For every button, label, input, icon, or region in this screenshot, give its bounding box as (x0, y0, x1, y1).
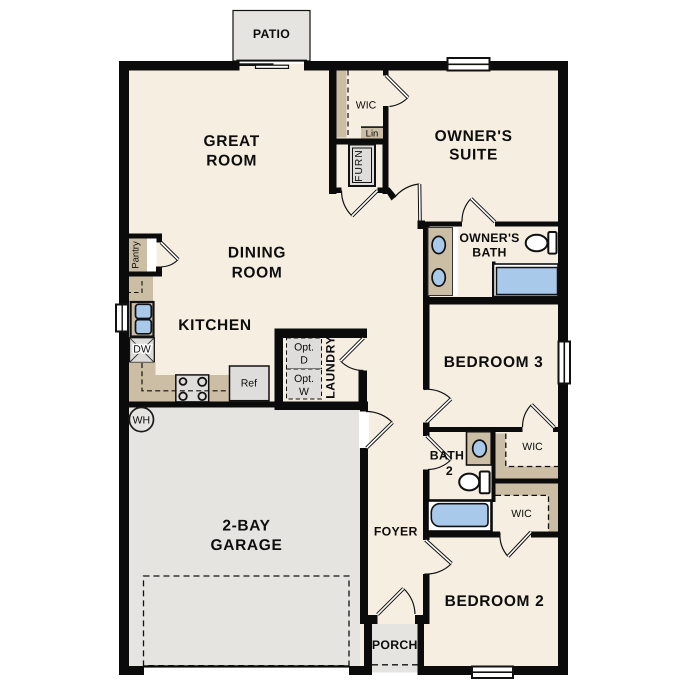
svg-text:BEDROOM 3: BEDROOM 3 (444, 354, 544, 371)
svg-text:DINING: DINING (228, 245, 286, 262)
svg-text:DW: DW (133, 344, 151, 356)
svg-text:WIC: WIC (356, 100, 377, 112)
svg-text:OWNER'S: OWNER'S (459, 231, 519, 245)
svg-text:2-BAY: 2-BAY (222, 518, 270, 535)
svg-text:PORCH: PORCH (372, 638, 418, 652)
svg-text:ROOM: ROOM (232, 265, 283, 282)
svg-text:ROOM: ROOM (206, 152, 257, 169)
svg-text:WIC: WIC (522, 441, 543, 453)
svg-text:FURN: FURN (354, 149, 365, 182)
svg-text:WH: WH (133, 414, 151, 426)
svg-text:GARAGE: GARAGE (211, 537, 283, 554)
svg-text:KITCHEN: KITCHEN (178, 317, 251, 334)
svg-text:BATH: BATH (472, 246, 506, 260)
svg-text:LAUNDRY: LAUNDRY (324, 336, 338, 399)
svg-text:SUITE: SUITE (449, 147, 498, 164)
svg-text:BEDROOM 2: BEDROOM 2 (445, 593, 545, 610)
svg-text:OWNER'S: OWNER'S (435, 128, 513, 145)
svg-text:Ref: Ref (241, 377, 257, 389)
svg-text:WIC: WIC (511, 508, 532, 520)
svg-text:Lin: Lin (366, 129, 379, 140)
svg-text:Opt.: Opt. (294, 373, 314, 385)
svg-text:2: 2 (446, 464, 453, 478)
svg-text:BATH: BATH (430, 449, 464, 463)
svg-text:Pantry: Pantry (131, 241, 142, 269)
svg-text:FOYER: FOYER (374, 525, 418, 539)
svg-text:PATIO: PATIO (253, 27, 290, 41)
svg-text:D: D (300, 355, 308, 367)
svg-text:GREAT: GREAT (204, 133, 260, 150)
svg-text:Opt.: Opt. (294, 342, 314, 354)
svg-text:W: W (299, 386, 309, 398)
